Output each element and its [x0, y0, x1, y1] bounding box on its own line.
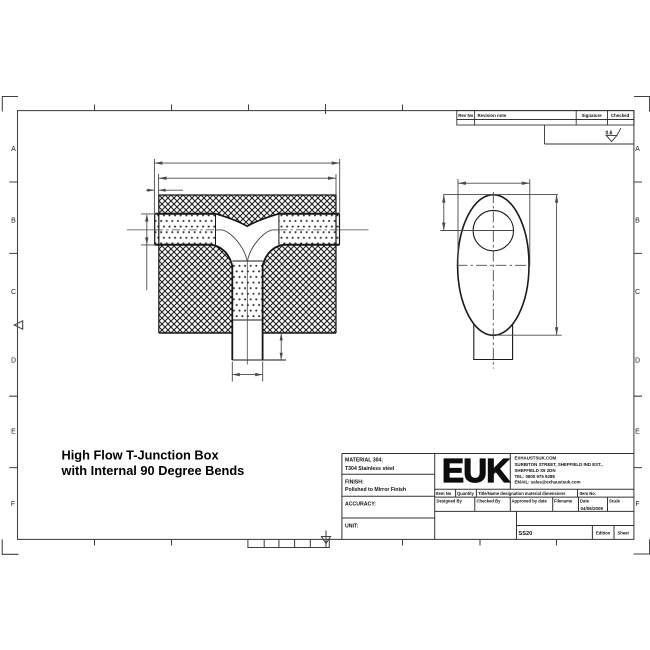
svg-text:EMAIL: sales@exhaustsuk.com: EMAIL: sales@exhaustsuk.com: [515, 480, 581, 485]
svg-text:ACCURACY:: ACCURACY:: [345, 501, 376, 507]
svg-text:UNIT:: UNIT:: [345, 523, 359, 529]
svg-text:Item No.: Item No.: [580, 491, 597, 496]
svg-text:T304 Stainless steel: T304 Stainless steel: [345, 466, 395, 472]
svg-text:Rev No: Rev No: [458, 113, 473, 118]
svg-text:Polished to Mirror Finish: Polished to Mirror Finish: [345, 487, 406, 493]
svg-text:Scale: Scale: [609, 499, 621, 504]
svg-text:Filename: Filename: [554, 499, 573, 504]
svg-text:FINISH:: FINISH:: [345, 479, 364, 485]
svg-text:MATERIAL 304:: MATERIAL 304:: [345, 458, 383, 464]
svg-text:Revision note: Revision note: [478, 113, 507, 118]
svg-text:04/06/2009: 04/06/2009: [581, 506, 604, 511]
svg-text:E: E: [11, 429, 16, 436]
svg-text:Title/Name designation materia: Title/Name designation material dimensio…: [478, 491, 566, 496]
svg-text:F: F: [11, 501, 15, 508]
svg-text:A: A: [635, 146, 640, 153]
svg-text:SS20: SS20: [519, 531, 533, 537]
svg-text:E: E: [635, 429, 640, 436]
svg-text:B: B: [635, 218, 640, 225]
svg-text:TEL: 0800 975 9288: TEL: 0800 975 9288: [515, 474, 556, 479]
svg-text:EUK: EUK: [442, 452, 510, 489]
svg-text:SURBITON STREET, SHEFFIELD IND: SURBITON STREET, SHEFFIELD IND EST.,: [515, 462, 603, 467]
svg-text:D: D: [11, 358, 16, 365]
svg-text:Signature: Signature: [582, 113, 603, 118]
svg-text:Quantity: Quantity: [457, 491, 475, 496]
svg-text:A: A: [11, 146, 16, 153]
svg-text:Item No: Item No: [436, 491, 452, 496]
svg-text:D: D: [635, 358, 640, 365]
svg-text:Checked: Checked: [611, 113, 630, 118]
svg-text:EXHAUSTSUK.COM: EXHAUSTSUK.COM: [515, 455, 557, 460]
svg-text:C: C: [11, 289, 16, 296]
svg-text:SHEFFIELD S9 2DN: SHEFFIELD S9 2DN: [515, 468, 556, 473]
svg-text:Designed By: Designed By: [437, 499, 463, 504]
svg-text:Sheet: Sheet: [618, 531, 630, 536]
svg-text:C: C: [635, 289, 640, 296]
svg-text:B: B: [11, 218, 16, 225]
svg-text:Edition: Edition: [596, 531, 611, 536]
svg-text:Date: Date: [580, 499, 590, 504]
svg-text:High Flow T-Junction Box: High Flow T-Junction Box: [62, 447, 220, 462]
svg-text:F: F: [635, 501, 639, 508]
svg-text:Checked By: Checked By: [477, 499, 502, 504]
svg-text:with Internal 90 Degree Bends: with Internal 90 Degree Bends: [61, 463, 245, 478]
svg-text:Approved by date: Approved by date: [512, 499, 548, 504]
